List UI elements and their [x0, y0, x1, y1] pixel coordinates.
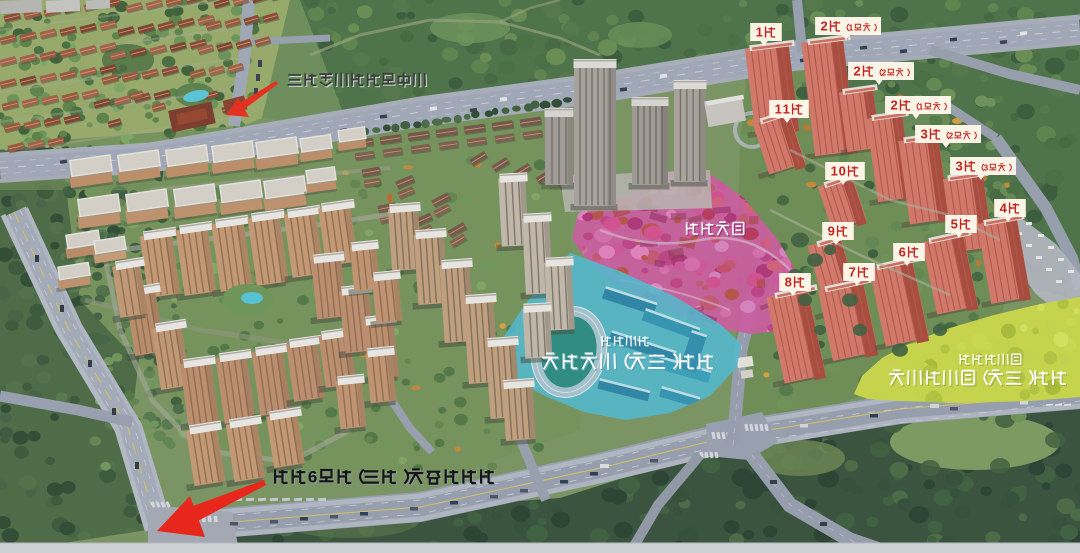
- svg-text:4: 4: [1000, 201, 1008, 216]
- svg-text:2: 2: [853, 64, 860, 79]
- svg-text:6: 6: [899, 245, 906, 260]
- svg-text:6: 6: [308, 468, 317, 487]
- svg-text:5: 5: [951, 217, 958, 232]
- svg-text:2: 2: [949, 131, 954, 141]
- svg-text:3: 3: [984, 163, 989, 173]
- svg-text:8: 8: [785, 275, 792, 290]
- svg-text:3: 3: [920, 127, 927, 142]
- svg-text:1: 1: [775, 102, 782, 117]
- svg-text:7: 7: [849, 265, 856, 280]
- svg-text:2: 2: [882, 68, 887, 78]
- svg-text:1: 1: [783, 102, 790, 117]
- svg-text:0: 0: [839, 164, 846, 179]
- svg-text:1: 1: [919, 102, 924, 112]
- svg-text:1: 1: [756, 25, 763, 40]
- svg-text:3: 3: [955, 159, 962, 174]
- svg-text:1: 1: [831, 164, 838, 179]
- svg-text:2: 2: [890, 98, 897, 113]
- svg-text:2: 2: [820, 19, 827, 34]
- svg-text:9: 9: [828, 224, 835, 239]
- svg-text:1: 1: [849, 23, 854, 33]
